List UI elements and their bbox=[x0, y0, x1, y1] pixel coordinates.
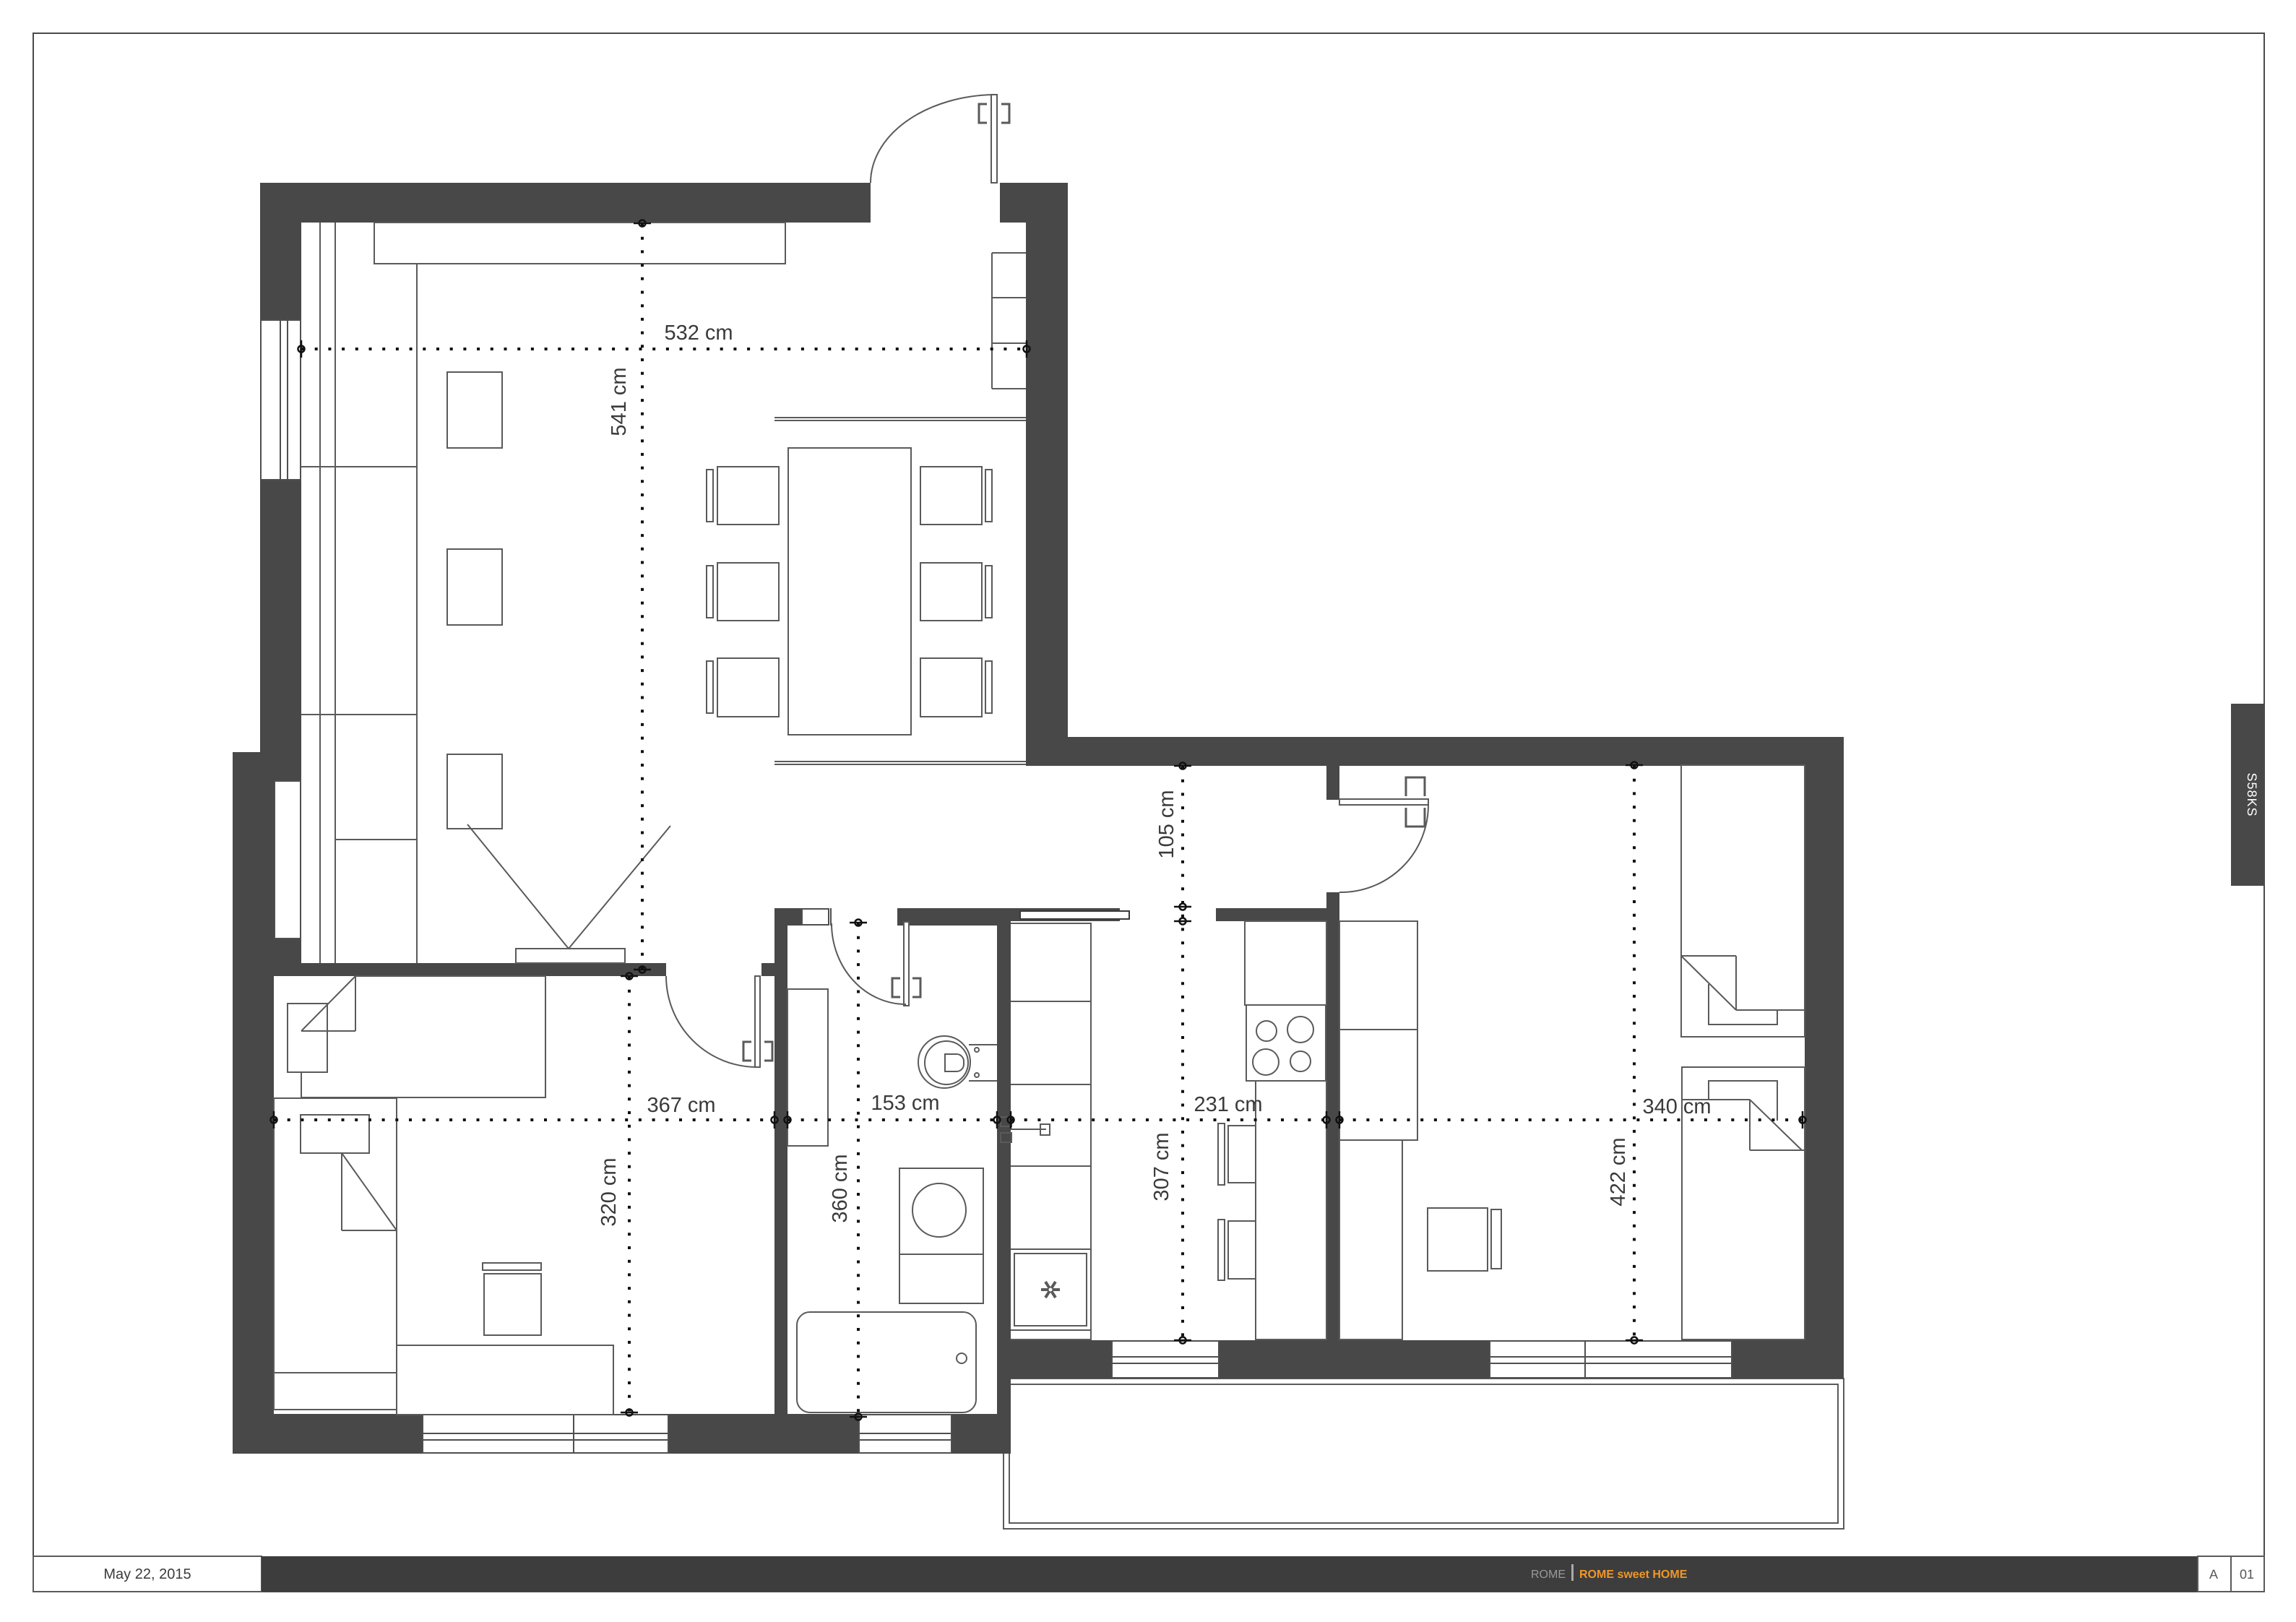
svg-text:422 cm: 422 cm bbox=[1607, 1137, 1630, 1206]
svg-text:01: 01 bbox=[2240, 1567, 2254, 1582]
svg-text:105 cm: 105 cm bbox=[1155, 790, 1178, 858]
svg-text:360 cm: 360 cm bbox=[829, 1154, 852, 1222]
svg-text:ROME sweet HOME: ROME sweet HOME bbox=[1579, 1569, 1688, 1581]
svg-text:S58KS: S58KS bbox=[2245, 772, 2259, 816]
svg-text:A: A bbox=[2209, 1567, 2218, 1582]
svg-text:ROME: ROME bbox=[1531, 1569, 1566, 1581]
svg-text:231 cm: 231 cm bbox=[1194, 1093, 1262, 1116]
svg-text:307 cm: 307 cm bbox=[1150, 1132, 1173, 1201]
svg-text:532 cm: 532 cm bbox=[664, 322, 733, 345]
svg-text:367 cm: 367 cm bbox=[647, 1094, 715, 1117]
svg-text:320 cm: 320 cm bbox=[597, 1157, 621, 1226]
svg-text:May 22, 2015: May 22, 2015 bbox=[103, 1566, 191, 1582]
svg-text:153 cm: 153 cm bbox=[871, 1092, 939, 1115]
svg-text:340 cm: 340 cm bbox=[1642, 1095, 1711, 1118]
svg-text:541 cm: 541 cm bbox=[608, 367, 631, 436]
